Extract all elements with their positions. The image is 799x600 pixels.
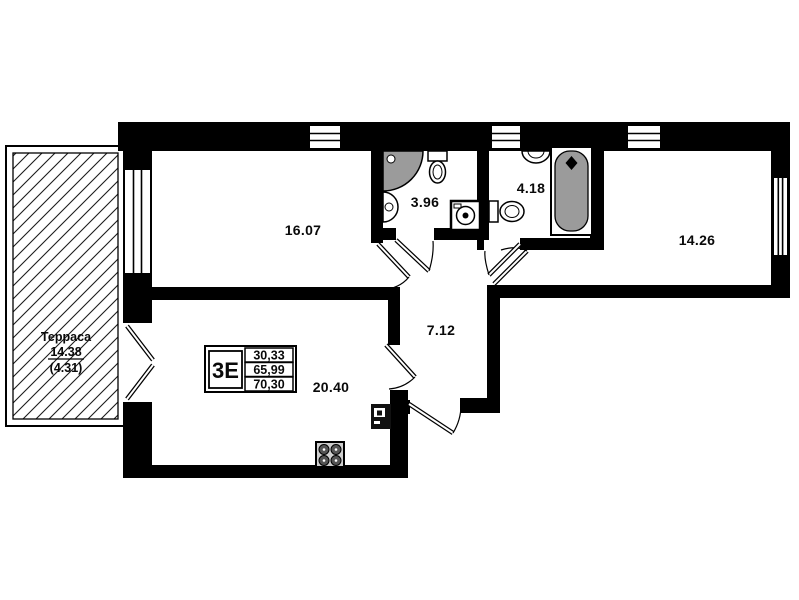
door-terrace [123,323,153,402]
terrace-coefficient-area: (4.31) [50,361,83,375]
terrace-hatch [13,153,118,419]
small-sink-icon [522,151,550,163]
floor-plan-page: Терраса 14.38 (4.31) [0,0,799,600]
toilet2-icon [489,201,524,222]
fixtures [316,147,592,467]
room-label-hallway: 7.12 [427,322,455,338]
room-label-bathroom1: 3.96 [411,194,439,210]
window-bedroom1-top [310,126,340,148]
door-swing-arc [453,405,461,433]
room-label-bathroom2: 4.18 [517,180,545,196]
floor-plan: Терраса 14.38 (4.31) [0,0,799,600]
terrace: Терраса 14.38 (4.31) [6,146,124,426]
door-swing-arc [485,251,489,275]
wall-bedroom1-living [123,287,400,300]
wall-bath2-bottom-right [520,238,592,250]
wall-bottom-exterior [123,465,408,478]
toilet-icon [428,151,447,183]
window-terrace-left [125,170,150,273]
shower-icon [383,151,423,191]
wall-living-hall-upper [388,300,400,345]
unit-type-label: 3Е [212,358,239,383]
bathtub-icon [551,147,592,235]
stove-icon [316,442,344,467]
wall-bottom-right-exterior [487,285,790,298]
wall-bath2-bottom-left [477,238,484,250]
unit-info-table: 3Е 30,33 65,99 70,30 [205,346,296,392]
door-swing-arc [429,241,433,271]
walls [118,122,790,478]
door-living-left [386,345,415,389]
window-bath2-top [492,126,520,148]
window-bedroom2-right [774,178,787,255]
room-label-living-kitchen: 20.40 [313,379,350,395]
wall-top-exterior [118,122,790,151]
wall-door-hinge-block [396,400,410,414]
window-bedroom2-top [628,126,660,148]
door-living-bottom [409,404,461,433]
door-bathroom2 [485,244,520,275]
room-label-bedroom2: 14.26 [679,232,716,248]
wall-hall-right [487,287,500,413]
sink-icon [383,192,398,222]
room-label-bedroom1: 16.07 [285,222,322,238]
wall-bedroom1-bath1 [371,151,383,243]
terrace-area: 14.38 [50,345,81,359]
unit-area-value-3: 70,30 [253,378,284,392]
washing-machine-icon [451,201,480,230]
unit-area-value-2: 65,99 [253,363,284,377]
electrical-panel-icon [371,404,391,429]
unit-area-value-1: 30,33 [253,349,284,363]
terrace-name: Терраса [41,330,92,344]
door-swing-arc [389,377,415,389]
wall-bath1-bottom-left [383,228,396,240]
